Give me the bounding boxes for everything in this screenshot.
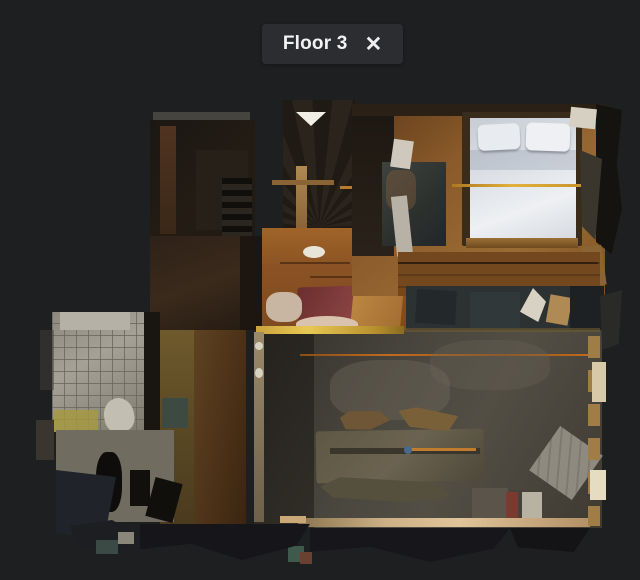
wall-silhouette [310,528,510,562]
right-wall-highlight [590,470,606,500]
scan-fragment [118,532,134,544]
clutter-fragment [162,398,188,428]
lit-threshold-strip [256,326,404,334]
rust-wall-strip [160,126,176,234]
wall-gap [144,312,160,432]
midleft-dark-band [240,236,262,330]
light-blob [303,246,325,258]
bed-pillow-right [526,122,571,152]
storage-box-white [522,492,542,520]
door-jamb [254,332,264,522]
scan-fragment [300,552,312,564]
winder-staircase [283,100,355,230]
wall-silhouette [140,524,310,560]
stair-handrail [272,180,334,185]
scan-fragment [96,540,118,554]
storage-box-red [506,492,518,518]
lit-baseboard [298,518,590,527]
clutter-fragment [415,289,457,325]
storage-box [472,488,508,522]
clutter-fragment [570,286,604,332]
floor-plank-line [280,262,350,264]
floorplan-view[interactable] [0,0,640,580]
door-hardware [255,368,263,378]
table-tool [406,448,476,451]
plank-seam [398,262,598,264]
floor-label-pill: Floor 3 ✕ [262,24,403,64]
bed-footboard [466,238,578,248]
bathmat [54,410,98,432]
floor-light-patch [430,340,550,390]
scan-hole [130,470,150,506]
door-hardware [255,342,263,350]
viewer-background: { "header": { "title": "Floor 3", "close… [0,0,640,580]
floor-title: Floor 3 [283,33,348,55]
scan-fragment [390,139,414,170]
scan-fragment [569,107,597,130]
close-icon[interactable]: ✕ [365,34,383,55]
threshold-strip-faint [404,328,600,332]
wall-silhouette [510,528,590,552]
scan-fragment [40,330,54,390]
table-object [404,446,412,454]
bathroom-wall-strip [60,312,130,330]
hall-wood-floor [194,330,246,528]
stairs-down-treads [222,178,252,236]
scan-fragment [36,420,54,460]
right-wall-highlight [592,362,606,402]
newel-post [296,166,307,228]
lit-baseboard-fragment [280,516,306,523]
clutter-fragment [470,292,520,328]
duvet-fold-shadow [470,150,576,170]
bed-pillow-left [477,123,520,151]
beige-pillow [266,292,302,322]
scan-fragment [600,290,622,350]
workbench-table [316,429,485,484]
